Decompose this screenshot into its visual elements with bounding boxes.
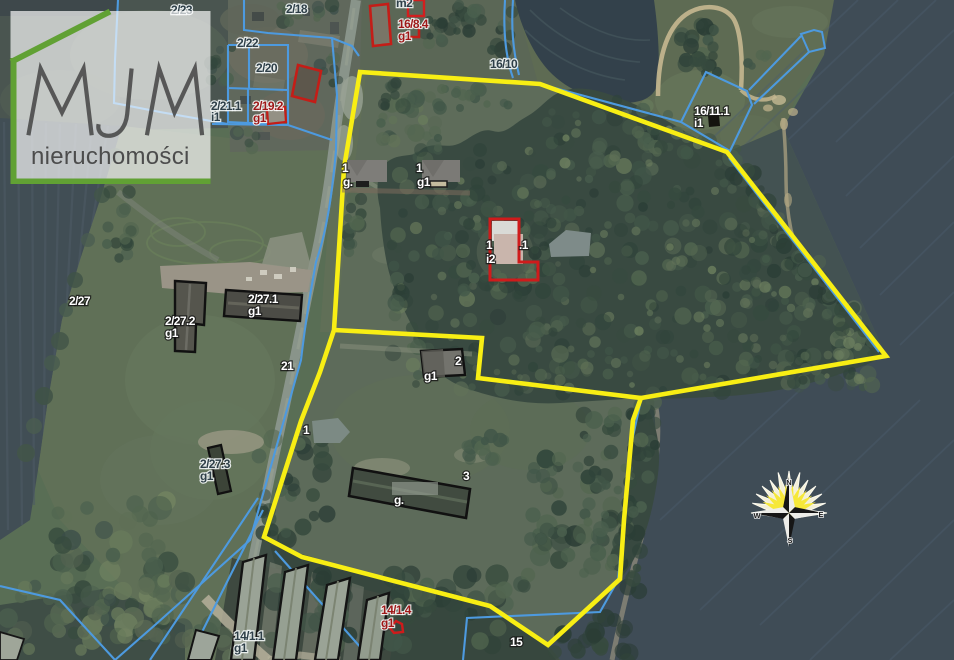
svg-text:i2: i2 [486,252,496,266]
svg-text:S: S [787,536,792,545]
svg-text:g.: g. [394,493,404,507]
svg-text:g1: g1 [248,304,262,318]
svg-text:W: W [753,511,761,520]
svg-text:g1: g1 [424,369,438,383]
svg-text:g1: g1 [398,29,412,43]
svg-text:g1: g1 [234,641,248,655]
svg-text:i1: i1 [694,116,704,130]
svg-text:g1: g1 [417,175,431,189]
svg-text:1: 1 [342,161,349,175]
svg-text:g1: g1 [165,326,179,340]
svg-text:21: 21 [281,359,294,373]
svg-text:i1: i1 [211,110,221,124]
svg-text:2/20: 2/20 [256,61,278,75]
svg-text:E: E [818,510,823,519]
svg-text:m2: m2 [396,0,413,10]
svg-text:g.: g. [343,175,353,189]
svg-text:nieruchomości: nieruchomości [31,143,190,170]
svg-text:1: 1 [303,423,310,437]
svg-text:14/1.4: 14/1.4 [381,603,412,617]
svg-text:1: 1 [486,238,493,252]
svg-text:1: 1 [416,161,423,175]
svg-text:15: 15 [510,635,523,649]
svg-text:2/27: 2/27 [69,294,91,308]
svg-text:2/18: 2/18 [286,2,308,16]
svg-text:.1: .1 [519,238,529,252]
svg-text:3: 3 [463,469,470,483]
svg-text:16/10: 16/10 [490,57,518,71]
svg-text:g1: g1 [381,616,395,630]
svg-text:N: N [786,478,791,487]
svg-text:2/22: 2/22 [237,36,259,50]
svg-text:g1: g1 [253,111,267,125]
svg-text:g1: g1 [200,469,214,483]
svg-text:2: 2 [455,354,462,368]
